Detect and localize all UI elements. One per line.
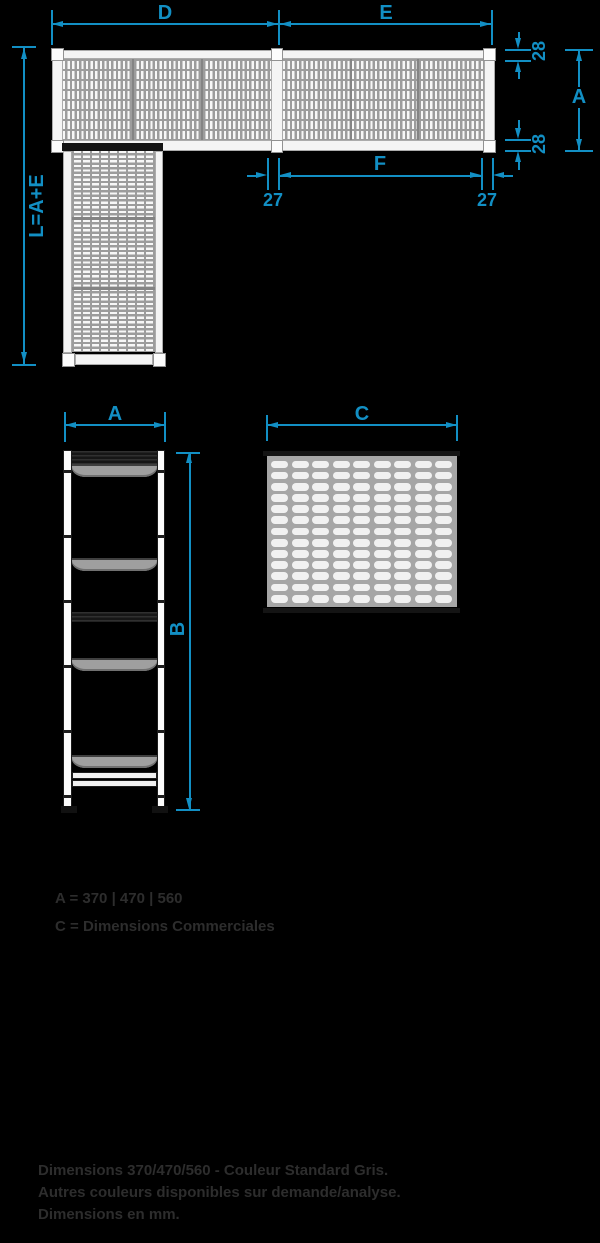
grating-slot xyxy=(415,539,432,547)
grating-slot xyxy=(415,561,432,569)
grating-slot xyxy=(312,528,329,536)
grating-slot xyxy=(374,539,391,547)
grating-slot xyxy=(415,505,432,513)
dim-label-27-right: 27 xyxy=(470,191,504,209)
grating-slot xyxy=(394,561,411,569)
grating-slot xyxy=(292,550,309,558)
dim-label-f: F xyxy=(365,154,395,174)
grating-slot xyxy=(435,550,452,558)
grating-slot xyxy=(271,472,288,480)
grating-slot xyxy=(353,572,370,580)
footer-line-2: Autres couleurs disponibles sur demande/… xyxy=(38,1182,401,1204)
grating-slot xyxy=(312,595,329,603)
footer-line-3: Dimensions en mm. xyxy=(38,1204,401,1226)
grating-slot xyxy=(415,572,432,580)
grating-slot xyxy=(435,539,452,547)
grating-slot xyxy=(312,494,329,502)
grating-slot xyxy=(394,472,411,480)
foot xyxy=(152,806,168,813)
grating-slot xyxy=(415,528,432,536)
legend-line-c: C = Dimensions Commerciales xyxy=(55,913,275,941)
grating-slot xyxy=(333,505,350,513)
grating-slot xyxy=(312,461,329,469)
tick xyxy=(505,139,531,141)
grating-slot xyxy=(394,595,411,603)
grating-slot xyxy=(333,572,350,580)
grating-slot xyxy=(333,550,350,558)
grating-slot xyxy=(394,483,411,491)
grating-slot xyxy=(271,461,288,469)
panel-divider xyxy=(350,59,352,140)
grating-slot xyxy=(394,539,411,547)
grating-slot xyxy=(374,595,391,603)
grating-slot xyxy=(271,584,288,592)
grating-slot xyxy=(435,494,452,502)
leader xyxy=(518,71,520,79)
grating-slot xyxy=(374,494,391,502)
leader xyxy=(518,162,520,170)
grating-slot xyxy=(271,539,288,547)
arrow-icon xyxy=(267,21,278,27)
grating-slot xyxy=(374,472,391,480)
grating-slot xyxy=(292,483,309,491)
shelf xyxy=(72,658,157,671)
grating-slot xyxy=(435,505,452,513)
grating-slot xyxy=(292,494,309,502)
dim-label-d: D xyxy=(150,3,180,23)
grating-slot xyxy=(374,516,391,524)
grating-slot xyxy=(312,472,329,480)
plan-left-rail xyxy=(52,50,63,150)
grating-slot xyxy=(312,561,329,569)
grating-slot xyxy=(333,461,350,469)
grating-slot xyxy=(435,572,452,580)
grating-slot xyxy=(394,572,411,580)
grating-slot xyxy=(394,516,411,524)
grating-slot xyxy=(353,561,370,569)
panel-bottom-bar xyxy=(263,608,460,613)
arrow-icon xyxy=(470,172,481,178)
grating-slot xyxy=(435,528,452,536)
leg-bottom-rail xyxy=(75,354,153,365)
grating-slot xyxy=(333,494,350,502)
corner-post xyxy=(51,48,64,61)
legend-a-label: A xyxy=(55,890,65,907)
dim-label-27-left: 27 xyxy=(256,191,290,209)
grating-slot xyxy=(415,494,432,502)
cross-brace xyxy=(72,772,157,780)
grating-slot xyxy=(374,461,391,469)
grating-slot xyxy=(333,528,350,536)
junction-bar xyxy=(62,143,163,151)
grating-slot xyxy=(312,572,329,580)
side-post-left xyxy=(63,450,72,810)
grating-slot xyxy=(435,483,452,491)
panel-divider xyxy=(201,59,203,140)
extension-line xyxy=(481,158,483,190)
grating-slot xyxy=(333,561,350,569)
grating-slot xyxy=(394,494,411,502)
grating-slot xyxy=(333,483,350,491)
dim-label-a: A xyxy=(570,87,588,107)
arrow-icon xyxy=(576,50,582,61)
grating-slot xyxy=(374,584,391,592)
panel-divider xyxy=(132,59,134,140)
arrow-icon xyxy=(576,139,582,150)
arrow-icon xyxy=(515,151,521,162)
shelf xyxy=(72,558,157,571)
cross-brace xyxy=(72,780,157,788)
grating-slot xyxy=(415,595,432,603)
arrow-icon xyxy=(493,172,504,178)
grating-slot xyxy=(271,528,288,536)
arrow-icon xyxy=(186,798,192,809)
extension-line xyxy=(51,10,53,45)
grating-slot xyxy=(415,483,432,491)
grating-slot xyxy=(374,550,391,558)
dim-label-b: B xyxy=(168,609,188,649)
grating-slot xyxy=(353,528,370,536)
shelf xyxy=(72,464,157,477)
arrow-icon xyxy=(267,422,278,428)
grating-slot xyxy=(271,561,288,569)
grating-slot xyxy=(353,472,370,480)
corner-post xyxy=(271,48,284,61)
arrow-icon xyxy=(154,422,165,428)
arrow-icon xyxy=(515,128,521,139)
grating-slot xyxy=(394,528,411,536)
arrow-icon xyxy=(480,21,491,27)
grating-slot xyxy=(312,505,329,513)
grating-slot xyxy=(353,595,370,603)
grating-slot xyxy=(312,584,329,592)
arrow-icon xyxy=(52,21,63,27)
grating-slot xyxy=(435,472,452,480)
grating-slot xyxy=(353,539,370,547)
panel-divider xyxy=(72,217,155,220)
grating-slot xyxy=(333,595,350,603)
panel-divider xyxy=(417,59,419,140)
grating-slot xyxy=(271,572,288,580)
grating-slot xyxy=(312,550,329,558)
grating-slot xyxy=(292,539,309,547)
extension-line xyxy=(456,415,458,441)
grating-field-e xyxy=(283,59,484,140)
grating-slot xyxy=(333,516,350,524)
tick xyxy=(12,364,36,366)
grating-slot xyxy=(333,472,350,480)
grating-slot xyxy=(394,550,411,558)
grating-slot xyxy=(415,584,432,592)
grating-slot xyxy=(353,584,370,592)
grating-slot xyxy=(271,483,288,491)
grating-slot xyxy=(435,584,452,592)
foot xyxy=(61,806,77,813)
grating-slot xyxy=(435,595,452,603)
grating-field-d xyxy=(63,59,271,140)
panel-grid xyxy=(267,456,457,607)
grating-slot xyxy=(292,461,309,469)
panel-divider xyxy=(72,287,155,290)
grating-slot xyxy=(312,539,329,547)
arrow-icon xyxy=(280,172,291,178)
grating-slot xyxy=(435,561,452,569)
arrow-icon xyxy=(21,352,27,363)
grating-slot xyxy=(353,550,370,558)
grating-slot xyxy=(292,584,309,592)
extension-line xyxy=(491,10,493,45)
dim-label-l: L=A+E xyxy=(27,158,47,254)
plan-right-rail xyxy=(484,50,495,150)
grating-slot xyxy=(374,528,391,536)
grating-slot xyxy=(353,494,370,502)
grating-slot xyxy=(374,483,391,491)
grating-slot xyxy=(292,561,309,569)
leg-right-rail xyxy=(155,151,164,353)
extension-line xyxy=(266,415,268,441)
dim-label-a: A xyxy=(100,404,130,424)
grating-slot xyxy=(312,516,329,524)
dim-line-l xyxy=(23,48,25,364)
dim-label-c: C xyxy=(347,404,377,424)
grating-slot xyxy=(374,572,391,580)
grating-slot xyxy=(374,505,391,513)
grating-slot xyxy=(271,516,288,524)
technical-drawing: D E L=A+E A 28 28 xyxy=(0,0,600,1243)
dim-label-e: E xyxy=(371,3,401,23)
arrow-icon xyxy=(515,38,521,49)
footer-line-1: Dimensions 370/470/560 - Couleur Standar… xyxy=(38,1160,401,1182)
panel-top-bar xyxy=(263,451,460,456)
grating-slot xyxy=(435,461,452,469)
legend-c-value: = Dimensions Commerciales xyxy=(66,918,275,935)
grating-slot xyxy=(394,584,411,592)
grating-slot xyxy=(271,595,288,603)
grating-slot xyxy=(312,483,329,491)
grating-slot xyxy=(292,472,309,480)
grating-slot xyxy=(415,461,432,469)
grating-slot xyxy=(415,516,432,524)
shelf-edge-band xyxy=(72,612,157,622)
grating-slot xyxy=(415,550,432,558)
grating-slot xyxy=(374,561,391,569)
extension-line xyxy=(278,10,280,45)
side-post-right xyxy=(157,450,166,810)
footer-notes: Dimensions 370/470/560 - Couleur Standar… xyxy=(38,1160,401,1226)
legend-a-value: = 370 | 470 | 560 xyxy=(65,890,182,907)
dim-label-28-top: 28 xyxy=(530,31,548,71)
grating-slot xyxy=(292,516,309,524)
arrow-icon xyxy=(186,452,192,463)
arrow-icon xyxy=(280,21,291,27)
grating-slot xyxy=(394,505,411,513)
grating-slot xyxy=(353,461,370,469)
legend: A = 370 | 470 | 560 C = Dimensions Comme… xyxy=(55,885,275,941)
extension-line xyxy=(267,158,269,190)
grating-slot xyxy=(271,494,288,502)
arrow-icon xyxy=(65,422,76,428)
legend-line-a: A = 370 | 470 | 560 xyxy=(55,885,275,913)
corner-post xyxy=(271,140,284,153)
grating-slot xyxy=(292,595,309,603)
grating-slot xyxy=(435,516,452,524)
grating-slot xyxy=(333,539,350,547)
grating-slot xyxy=(292,505,309,513)
corner-post xyxy=(62,353,75,367)
grating-slot xyxy=(271,505,288,513)
grating-slot xyxy=(271,550,288,558)
grating-slot xyxy=(353,505,370,513)
grating-slot xyxy=(353,483,370,491)
arrow-icon xyxy=(446,422,457,428)
corner-post xyxy=(483,48,496,61)
grating-slot xyxy=(292,572,309,580)
shelf xyxy=(72,755,157,768)
leg-grating xyxy=(72,151,155,353)
legend-c-label: C xyxy=(55,918,66,935)
plan-mid-rail xyxy=(271,50,283,150)
grating-slot xyxy=(415,472,432,480)
grating-slot xyxy=(292,528,309,536)
dim-label-28-bottom: 28 xyxy=(530,124,548,164)
shelf-edge-band xyxy=(72,451,157,464)
grating-slot xyxy=(394,461,411,469)
grating-slot xyxy=(333,584,350,592)
arrow-icon xyxy=(256,172,267,178)
arrow-icon xyxy=(21,48,27,59)
corner-post xyxy=(483,140,496,153)
corner-post xyxy=(153,353,166,367)
tick xyxy=(505,49,531,51)
leg-left-rail xyxy=(63,151,72,353)
grating-slot xyxy=(353,516,370,524)
